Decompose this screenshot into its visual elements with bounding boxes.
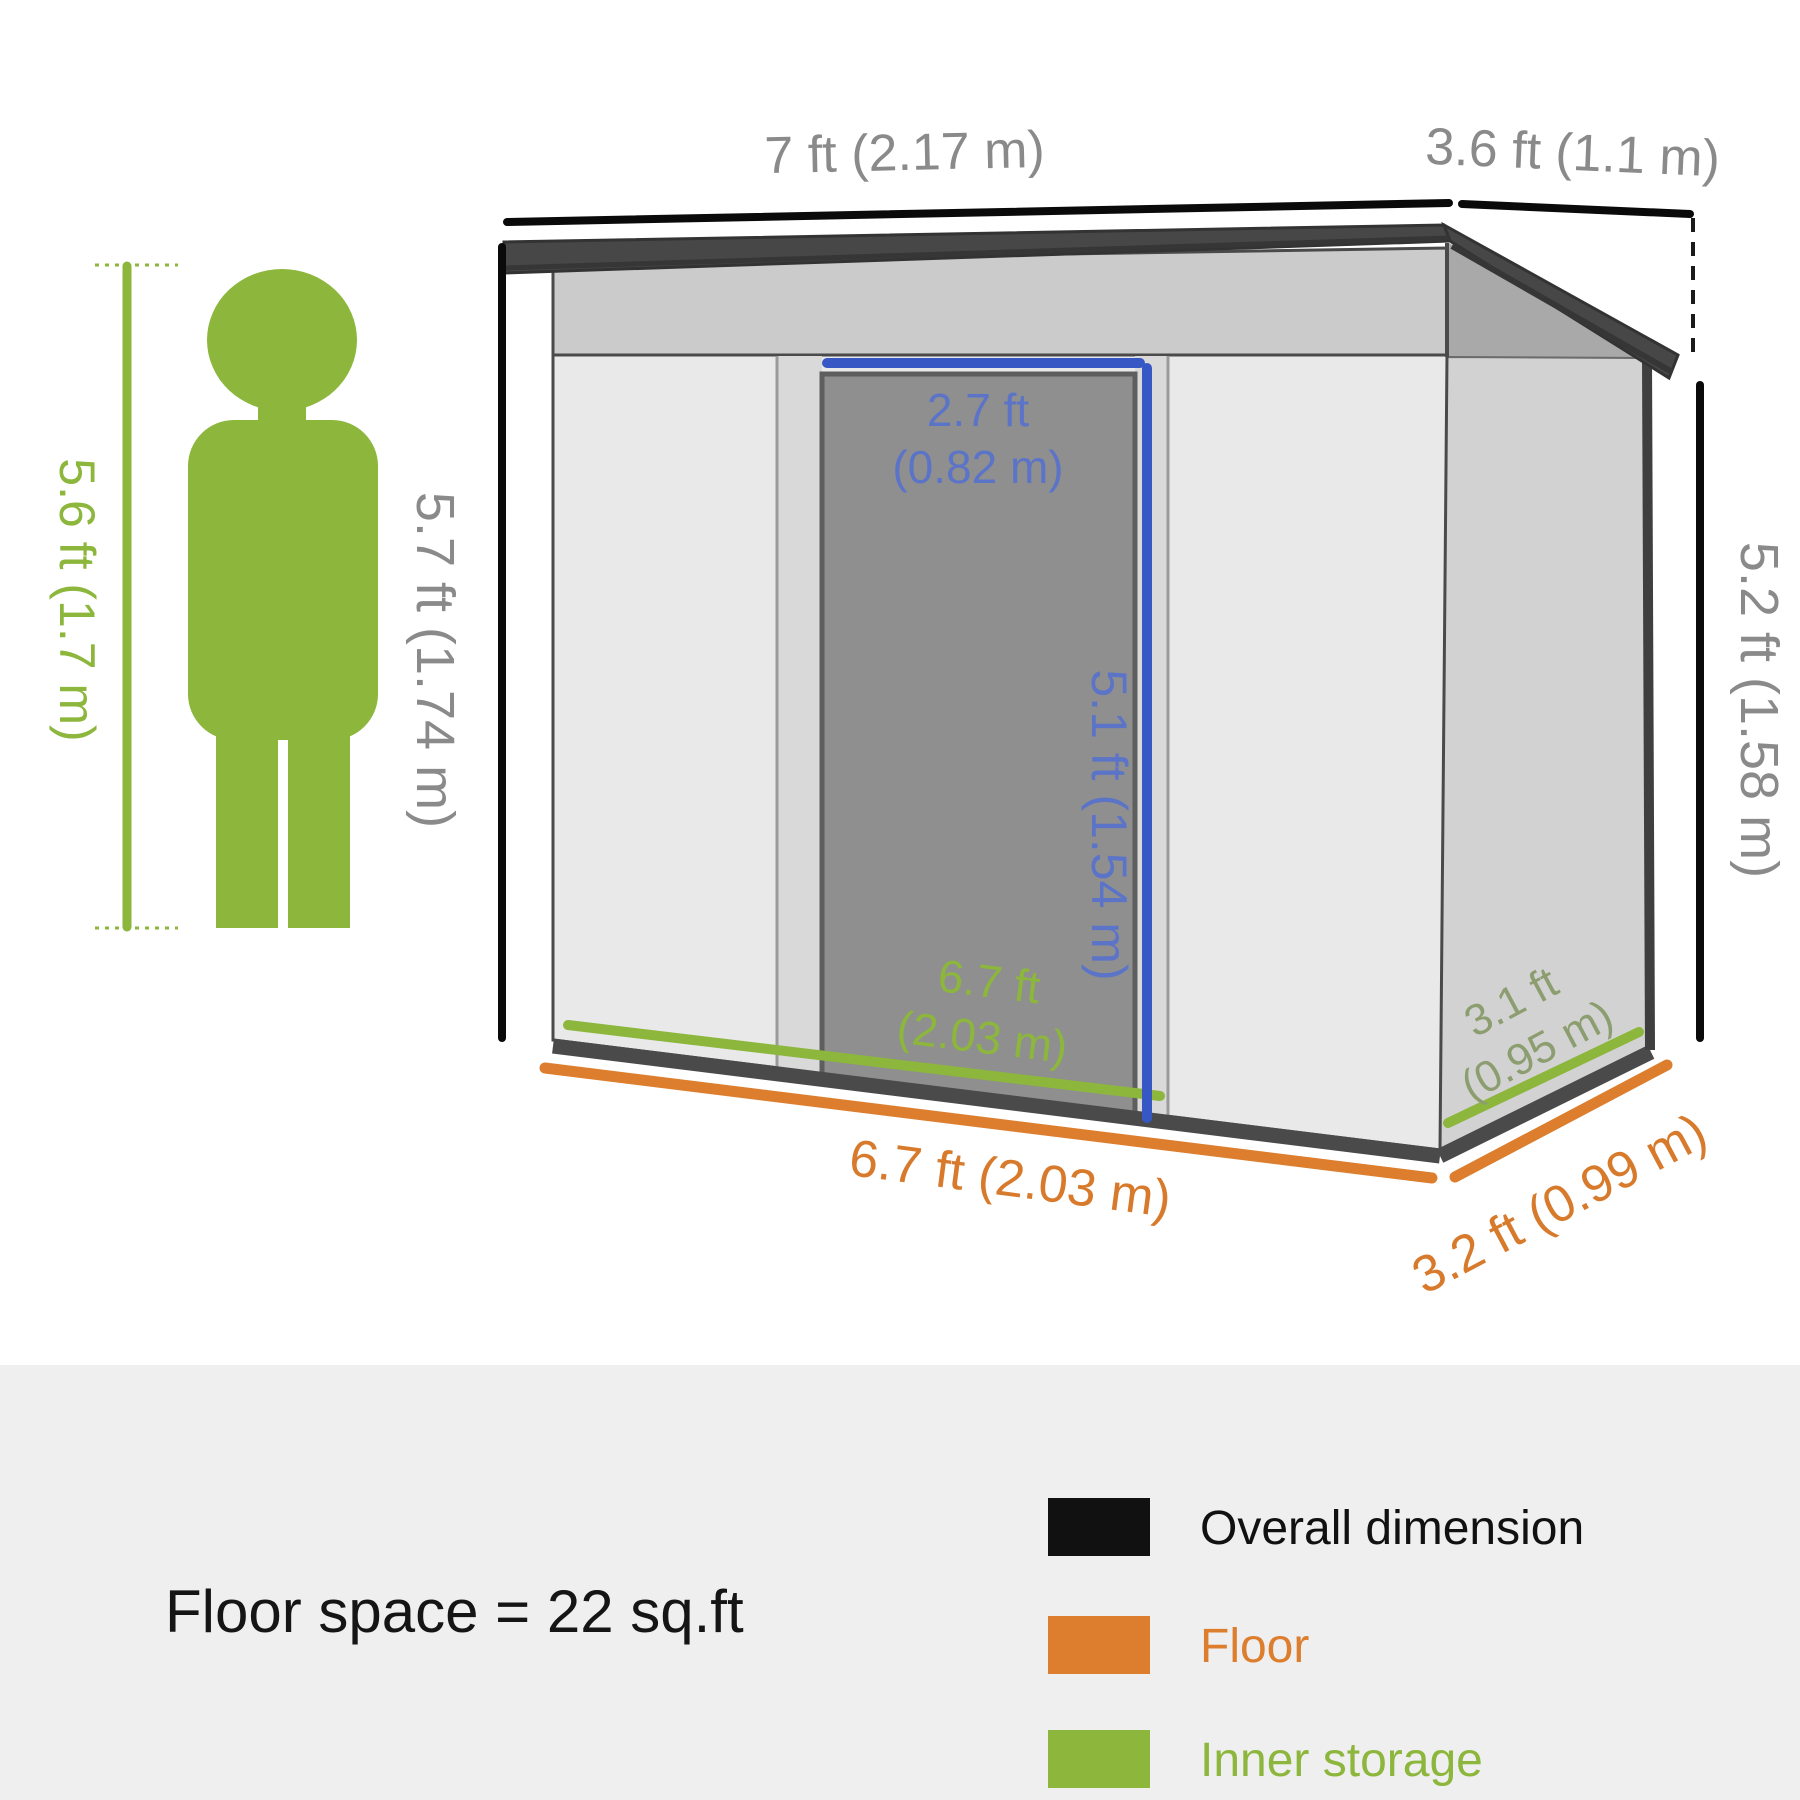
legend-swatch-overall [1048, 1498, 1150, 1556]
shed-side-rear-edge [1647, 360, 1650, 1050]
back-height-label: 5.2 ft (1.58 m) [1729, 542, 1789, 878]
overall-width-label: 7 ft (2.17 m) [764, 121, 1046, 185]
floor-space-text: Floor space = 22 sq.ft [165, 1578, 744, 1645]
door-width-label-ft: 2.7 ft [927, 384, 1030, 436]
overall-depth-label: 3.6 ft (1.1 m) [1424, 118, 1721, 189]
door-height-label: 5.1 ft (1.54 m) [1081, 669, 1137, 980]
person-silhouette: 5.6 ft (1.7 m) [49, 265, 378, 928]
legend-swatch-floor [1048, 1616, 1150, 1674]
overall-width-line [507, 203, 1449, 222]
door-track-left [777, 356, 822, 1079]
person-height-label: 5.6 ft (1.7 m) [49, 458, 105, 741]
shed-dimension-infographic: 5.6 ft (1.7 m) [0, 0, 1800, 1800]
legend-label-inner-storage: Inner storage [1200, 1734, 1483, 1787]
diagram-canvas: 5.6 ft (1.7 m) [0, 0, 1800, 1800]
door-width-label-m: (0.82 m) [892, 441, 1063, 493]
legend-label-floor: Floor [1200, 1620, 1309, 1673]
legend-swatch-inner-storage [1048, 1730, 1150, 1788]
legend-label-overall: Overall dimension [1200, 1502, 1584, 1555]
person-head [207, 269, 357, 411]
front-height-label: 5.7 ft (1.74 m) [405, 492, 465, 828]
overall-depth-line [1462, 204, 1690, 214]
person-right-leg [288, 690, 350, 928]
person-left-leg [216, 690, 278, 928]
